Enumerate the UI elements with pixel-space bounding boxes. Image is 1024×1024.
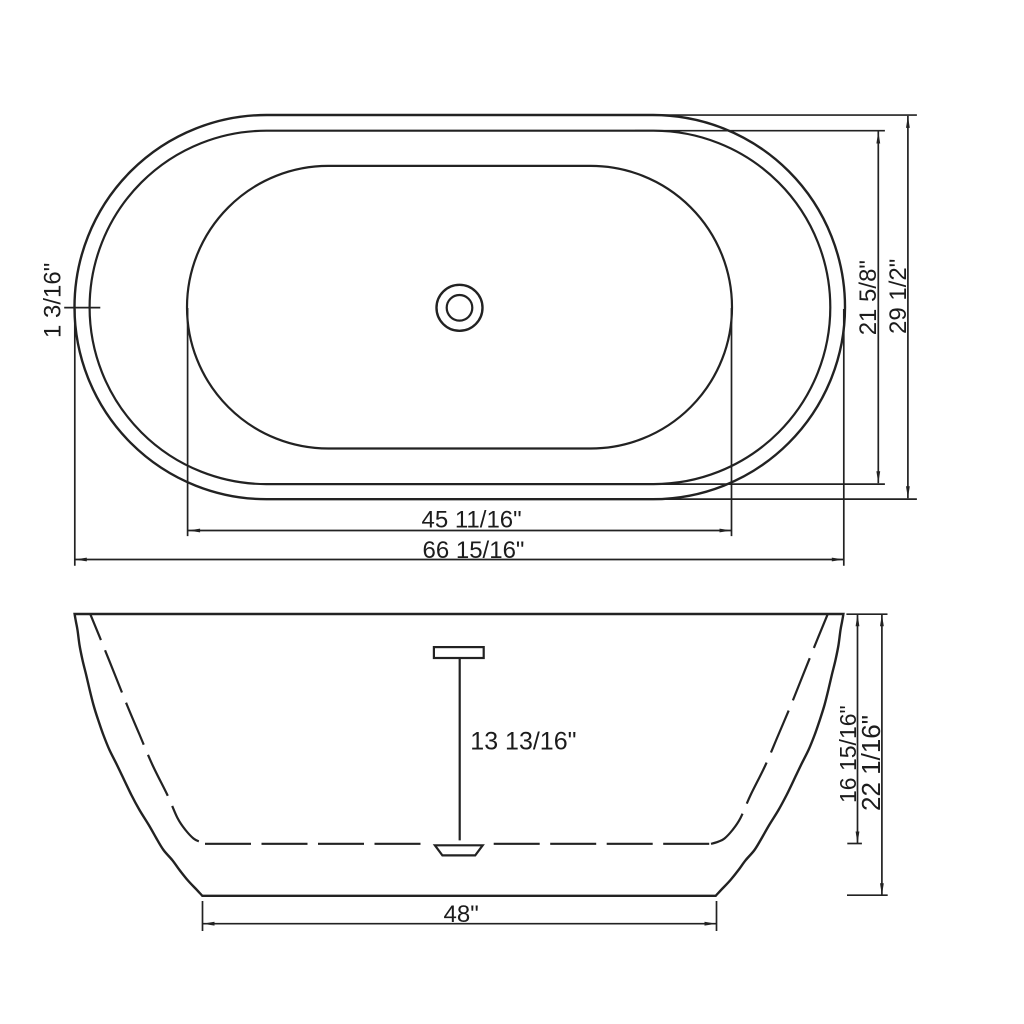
svg-text:1 3/16": 1 3/16" [40, 263, 67, 338]
svg-text:45 11/16": 45 11/16" [422, 506, 522, 533]
svg-text:48": 48" [444, 901, 479, 928]
svg-text:66 15/16": 66 15/16" [423, 537, 525, 564]
svg-text:22 1/16": 22 1/16" [856, 715, 886, 811]
svg-text:29 1/2": 29 1/2" [885, 259, 912, 334]
svg-text:13 13/16": 13 13/16" [470, 727, 576, 755]
svg-text:21 5/8": 21 5/8" [855, 260, 882, 335]
